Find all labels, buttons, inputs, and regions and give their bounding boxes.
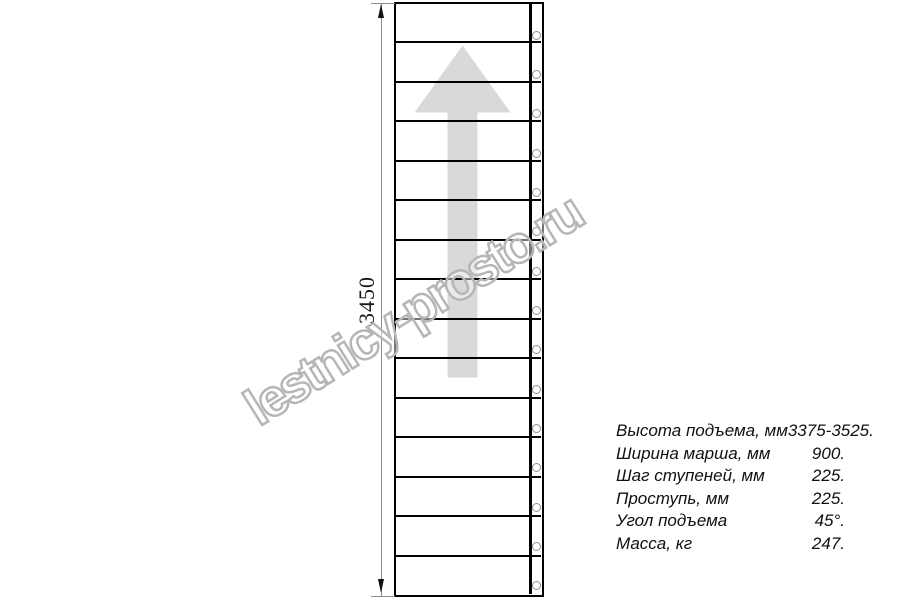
spec-row-width: Ширина марша, мм 900. xyxy=(616,443,845,466)
fastener-circle xyxy=(532,70,541,79)
tread-row xyxy=(396,557,541,594)
fastener-circle xyxy=(532,424,541,433)
spec-value: 225. xyxy=(812,488,845,511)
spec-label: Высота подъема, мм xyxy=(616,420,788,443)
tread-row xyxy=(396,201,541,240)
spec-table: Высота подъема, мм 3375-3525. Ширина мар… xyxy=(616,420,845,556)
tread-row xyxy=(396,241,541,280)
tread-row xyxy=(396,4,541,43)
tread-row xyxy=(396,43,541,82)
fastener-circle xyxy=(532,306,541,315)
spec-value: 3375-3525. xyxy=(788,420,874,443)
spec-row-height: Высота подъема, мм 3375-3525. xyxy=(616,420,845,443)
spec-label: Масса, кг xyxy=(616,533,692,556)
fastener-circle xyxy=(532,503,541,512)
spec-value: 900. xyxy=(812,443,845,466)
dimension-arrowhead-up xyxy=(378,4,384,18)
spec-row-step-pitch: Шаг ступеней, мм 225. xyxy=(616,465,845,488)
tread-row xyxy=(396,438,541,477)
dimension-value-label: 3450 xyxy=(354,276,380,324)
tread-row xyxy=(396,83,541,122)
spec-row-angle: Угол подъема 45°. xyxy=(616,510,845,533)
tread-row xyxy=(396,162,541,201)
tread-row xyxy=(396,399,541,438)
dimension-arrowhead-down xyxy=(378,579,384,593)
fastener-circle xyxy=(532,188,541,197)
tread-row xyxy=(396,280,541,319)
fastener-circle xyxy=(532,149,541,158)
spec-row-tread-depth: Проступь, мм 225. xyxy=(616,488,845,511)
spec-label: Угол подъема xyxy=(616,510,727,533)
spec-value: 247. xyxy=(812,533,845,556)
dimension-extension-bottom xyxy=(371,596,395,597)
tread-row xyxy=(396,122,541,161)
tread-row xyxy=(396,478,541,517)
fastener-circle xyxy=(532,267,541,276)
spec-label: Шаг ступеней, мм xyxy=(616,465,765,488)
tread-row xyxy=(396,359,541,398)
spec-label: Ширина марша, мм xyxy=(616,443,770,466)
fastener-circle xyxy=(532,542,541,551)
tread-row xyxy=(396,320,541,359)
spec-row-mass: Масса, кг 247. xyxy=(616,533,845,556)
tread-row xyxy=(396,517,541,556)
spec-value: 45°. xyxy=(815,510,845,533)
dimension-line xyxy=(381,3,382,597)
fastener-circle xyxy=(532,385,541,394)
spec-label: Проступь, мм xyxy=(616,488,729,511)
spec-value: 225. xyxy=(812,465,845,488)
fastener-circle xyxy=(532,31,541,40)
tread-rows xyxy=(396,4,541,594)
staircase-plan-view xyxy=(394,2,544,597)
